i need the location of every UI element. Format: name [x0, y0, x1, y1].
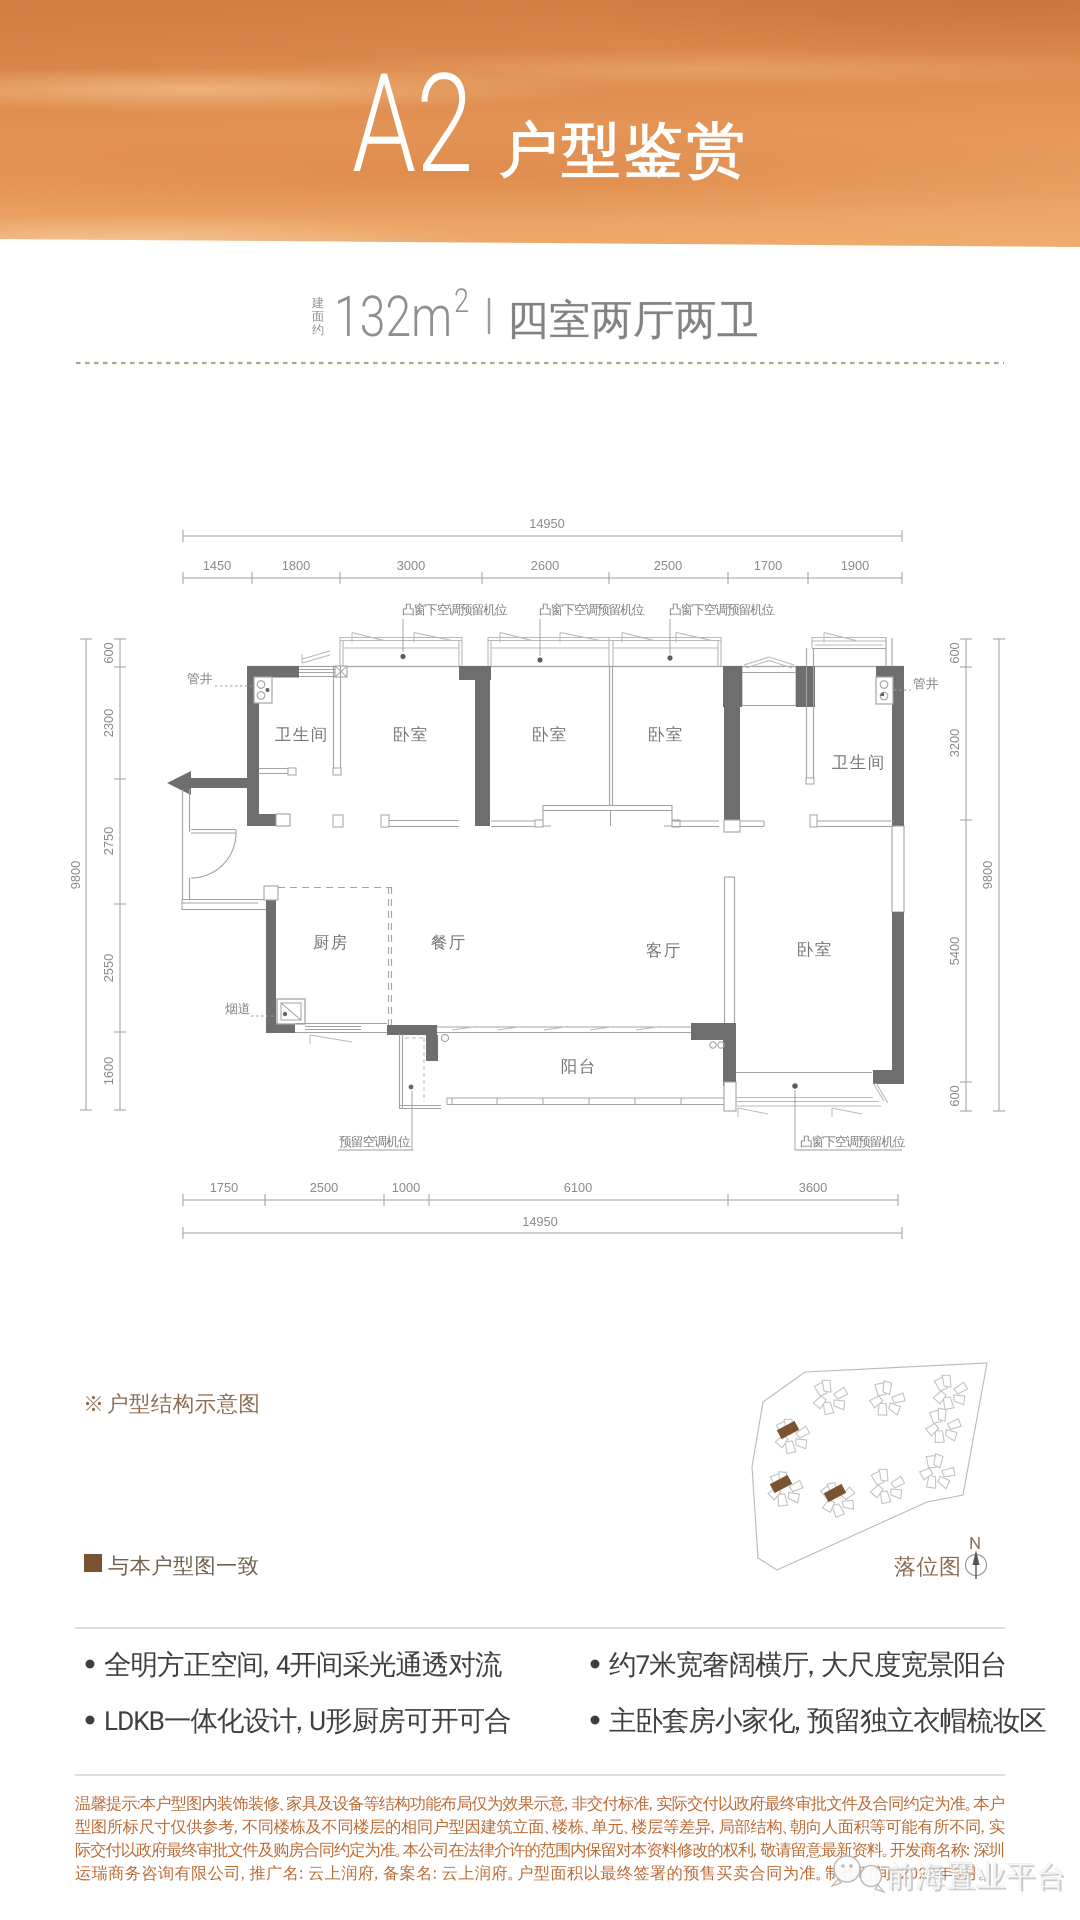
svg-text:3600: 3600	[799, 1180, 827, 1195]
svg-text:1900: 1900	[841, 558, 869, 573]
svg-text:2600: 2600	[531, 558, 559, 573]
svg-text:2500: 2500	[654, 558, 682, 573]
svg-text:5400: 5400	[947, 937, 962, 965]
svg-text:3000: 3000	[397, 558, 425, 573]
svg-text:1800: 1800	[282, 558, 310, 573]
svg-text:2750: 2750	[101, 827, 116, 855]
svg-text:1450: 1450	[203, 558, 231, 573]
svg-text:9800: 9800	[980, 861, 995, 889]
svg-text:1750: 1750	[210, 1180, 238, 1195]
svg-text:1600: 1600	[101, 1057, 116, 1085]
svg-text:2300: 2300	[101, 709, 116, 737]
svg-text:1700: 1700	[754, 558, 782, 573]
svg-text:600: 600	[101, 642, 116, 663]
svg-text:14950: 14950	[529, 516, 565, 531]
svg-text:2550: 2550	[101, 954, 116, 982]
svg-text:9800: 9800	[68, 861, 83, 889]
svg-text:600: 600	[947, 1085, 962, 1106]
svg-text:2500: 2500	[310, 1180, 338, 1195]
svg-text:14950: 14950	[522, 1214, 558, 1229]
svg-text:6100: 6100	[564, 1180, 592, 1195]
svg-text:3200: 3200	[947, 729, 962, 757]
svg-text:1000: 1000	[392, 1180, 420, 1195]
svg-text:600: 600	[947, 642, 962, 663]
